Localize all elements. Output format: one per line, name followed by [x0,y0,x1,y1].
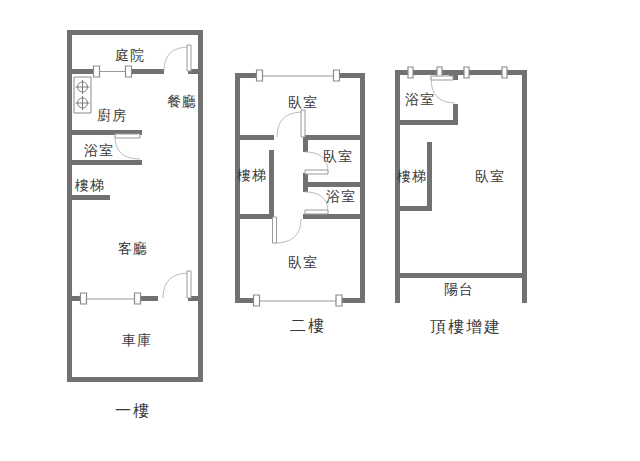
floor-caption-second-floor: 二樓 [290,316,326,335]
floor-caption-rooftop-addition: 頂樓增建 [430,317,502,336]
floor-plan-second-floor: 臥室 樓梯 臥室 浴室 臥室 二樓 [235,70,365,335]
room-label-stairs: 樓梯 [396,168,427,184]
room-label-bedroom: 臥室 [475,168,505,184]
stove-icon [74,77,91,113]
room-label-bedroom-middle: 臥室 [323,148,353,164]
floor-caption-first-floor: 一樓 [115,401,151,420]
room-label-dining-room: 餐廳 [167,93,197,109]
room-label-bedroom-top: 臥室 [288,94,318,110]
room-label-kitchen: 廚房 [97,107,127,123]
floor-plan-drawing: 庭院 餐廳 廚房 浴室 樓梯 客廳 車庫 一樓 臥室 樓梯 臥室 浴室 臥室 二… [0,0,640,461]
floor-plan-first-floor: 庭院 餐廳 廚房 浴室 樓梯 客廳 車庫 一樓 [67,30,203,420]
door-arcs-first-floor [115,47,189,298]
door-leaves-second-floor [273,110,329,243]
room-label-stairs: 樓梯 [74,177,105,193]
room-label-bedroom-bottom: 臥室 [288,254,318,270]
room-label-bathroom: 浴室 [84,142,114,158]
room-label-living-room: 客廳 [118,240,148,256]
room-label-bathroom: 浴室 [326,188,356,204]
room-label-bathroom: 浴室 [405,91,435,107]
floor-plan-page: 庭院 餐廳 廚房 浴室 樓梯 客廳 車庫 一樓 臥室 樓梯 臥室 浴室 臥室 二… [0,0,640,461]
room-label-balcony: 陽台 [444,281,474,297]
floor-plan-rooftop-addition: 浴室 樓梯 臥室 陽台 頂樓增建 [395,67,527,336]
room-label-stairs: 樓梯 [236,167,267,183]
door-leaves-first-floor [115,45,191,298]
door-leaves-rooftop [431,76,453,80]
room-label-courtyard: 庭院 [115,47,145,63]
room-label-garage: 車庫 [122,332,152,348]
